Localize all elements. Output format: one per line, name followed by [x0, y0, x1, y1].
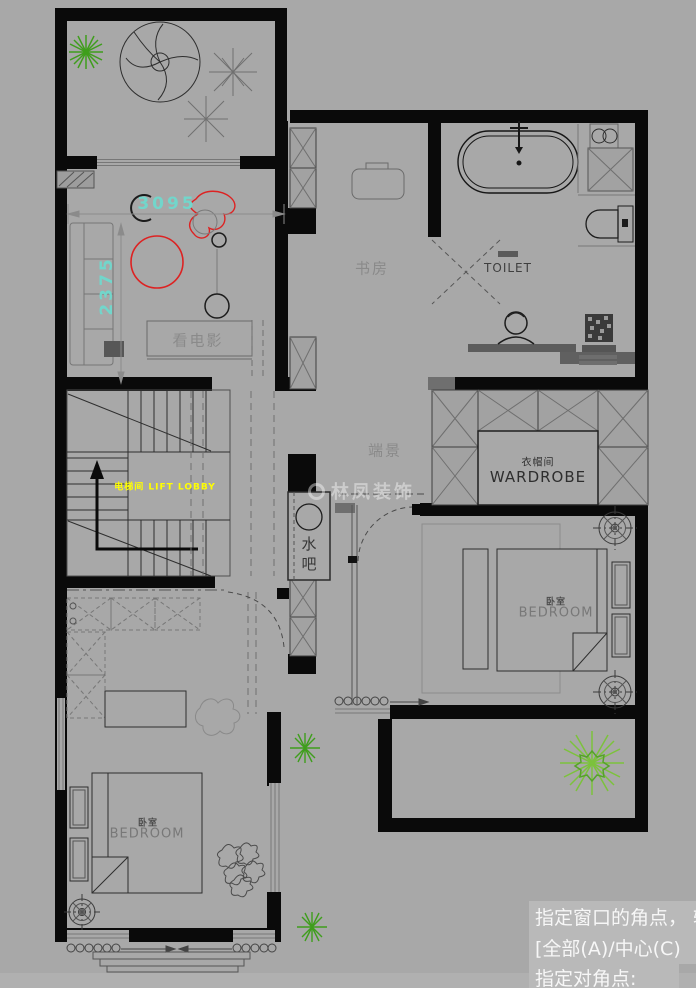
- green-flower-icon: [560, 731, 624, 795]
- double-socket-icon: [590, 124, 618, 148]
- green-plant-icon: [290, 733, 320, 763]
- label-wardrobe-en: WARDROBE: [490, 468, 586, 486]
- tree-symbol: [120, 22, 200, 102]
- faucet-icon: [510, 121, 528, 154]
- door-swing-arc: [358, 507, 412, 561]
- command-prompt-line-3[interactable]: 指定对角点:: [529, 962, 679, 988]
- nightstand: [612, 562, 630, 657]
- nightstand: [70, 787, 88, 881]
- wardrobe-room: [432, 390, 648, 505]
- qr-watermark: [579, 314, 617, 365]
- brand-logo-icon: [308, 483, 325, 500]
- terrace-garden: [69, 22, 257, 142]
- label-water-bar: 水吧: [299, 536, 320, 576]
- plant-blob-cluster: [217, 843, 264, 897]
- master-bedroom: [348, 505, 637, 714]
- brand-watermark: 林凤装饰: [308, 478, 415, 504]
- study-room: [352, 163, 500, 304]
- bathroom: [458, 121, 635, 365]
- shaft-box: [588, 148, 633, 191]
- rug-red-circle: [131, 236, 183, 288]
- bench: [463, 549, 488, 669]
- stool: [212, 233, 226, 247]
- toilet-symbol: [586, 206, 633, 242]
- desk: [105, 691, 186, 727]
- pendant-lamp: [205, 294, 229, 318]
- plant-symbol: [184, 96, 228, 142]
- dimension-line-vertical: [118, 224, 124, 383]
- green-plant-icon: [297, 912, 327, 942]
- second-bedroom: [64, 592, 284, 930]
- plant-blob: [195, 699, 239, 735]
- label-wardrobe-cn: 衣帽间: [522, 454, 555, 469]
- dimension-3095: 3095: [137, 194, 196, 214]
- washbasin-figure: [498, 312, 534, 344]
- desk: [352, 169, 404, 199]
- label-second-bedroom-en: BEDROOM: [110, 827, 185, 842]
- label-end-scene: 端景: [368, 440, 402, 461]
- label-lift-lobby: 电梯间 LIFT LOBBY: [114, 480, 215, 493]
- label-home-theater: 看电影: [172, 330, 223, 351]
- label-study: 书房: [355, 258, 389, 279]
- dimension-2375: 2375: [97, 256, 117, 315]
- label-toilet: TOILET: [484, 261, 532, 275]
- plant-symbol: [209, 48, 257, 96]
- ceiling-fan-icon: [64, 894, 100, 930]
- entry-steps: [93, 952, 250, 972]
- green-plant-icon: [69, 35, 103, 69]
- dashed-partitions: [191, 391, 274, 714]
- label-master-bedroom-en: BEDROOM: [519, 606, 594, 621]
- brand-name: 林凤装饰: [331, 478, 415, 504]
- command-prompt-line-2: [全部(A)/中心(C): [529, 932, 696, 964]
- door-threshold: [498, 251, 518, 257]
- cad-drawing-canvas: 3095 2375 看电影 书房 TOILET 端景 衣帽间 WARDROBE …: [0, 0, 696, 988]
- command-prompt-line-1: 指定窗口的角点， 输: [529, 901, 696, 933]
